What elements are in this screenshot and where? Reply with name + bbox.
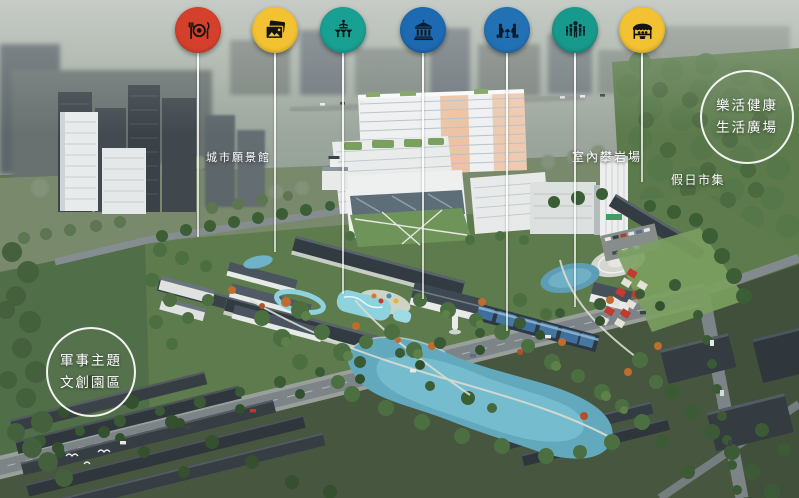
- marker-performance[interactable]: [320, 7, 366, 53]
- marker-leader-line: [506, 52, 508, 331]
- marker-market[interactable]: [619, 7, 665, 53]
- marker-bubble[interactable]: [175, 7, 221, 53]
- zone-badge-lohas-plaza: 樂活健康 生活廣場: [700, 70, 794, 164]
- marker-photos[interactable]: [252, 7, 298, 53]
- museum-icon: [410, 17, 437, 44]
- marker-family[interactable]: [552, 7, 598, 53]
- marker-leader-line: [641, 52, 643, 182]
- marker-bubble[interactable]: [484, 7, 530, 53]
- seniors-icon: [494, 17, 521, 44]
- performance-icon: [330, 17, 357, 44]
- marker-leader-line: [422, 52, 424, 299]
- aerial-site-render: [0, 0, 799, 498]
- masterplan-canvas: 城市願景館 室內攀岩場 假日市集 樂活健康 生活廣場 軍事主題 文創園區: [0, 0, 799, 498]
- label-holiday-market: 假日市集: [671, 171, 725, 188]
- market-icon: [629, 17, 656, 44]
- marker-leader-line: [342, 52, 344, 294]
- zone-badge-military-park: 軍事主題 文創園區: [46, 327, 136, 417]
- marker-bubble[interactable]: [552, 7, 598, 53]
- marker-bubble[interactable]: [252, 7, 298, 53]
- marker-bubble[interactable]: [619, 7, 665, 53]
- marker-bubble[interactable]: [400, 7, 446, 53]
- family-icon: [562, 17, 589, 44]
- marker-seniors[interactable]: [484, 7, 530, 53]
- marker-museum[interactable]: [400, 7, 446, 53]
- dining-icon: [185, 17, 212, 44]
- marker-leader-line: [274, 52, 276, 252]
- marker-leader-line: [197, 52, 199, 237]
- label-city-vision-hall: 城市願景館: [206, 149, 271, 165]
- zone-badge-line: 樂活健康: [716, 95, 778, 117]
- marker-leader-line: [574, 52, 576, 307]
- zone-badge-line: 文創園區: [60, 372, 122, 394]
- photos-icon: [262, 17, 289, 44]
- marker-bubble[interactable]: [320, 7, 366, 53]
- zone-badge-line: 生活廣場: [716, 117, 778, 139]
- label-indoor-climbing: 室內攀岩場: [572, 148, 642, 165]
- marker-dining[interactable]: [175, 7, 221, 53]
- zone-badge-line: 軍事主題: [60, 350, 122, 372]
